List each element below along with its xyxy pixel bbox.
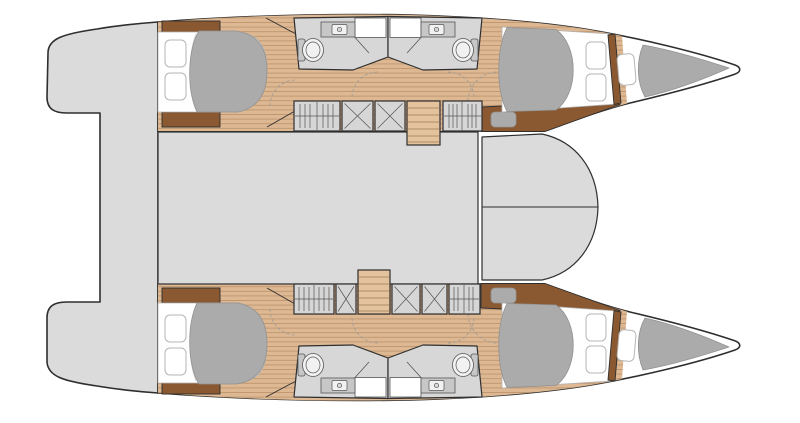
forward-cockpit [482,134,598,280]
catamaran-floor-plan [0,0,800,423]
hanging-wardrobe [449,284,480,314]
floor-plan-canvas [0,0,800,423]
companionway-steps [358,270,390,314]
salon-bridgedeck [158,132,478,284]
hanging-wardrobe [294,101,340,131]
storage-locker [342,101,373,131]
companionway-steps [407,101,440,145]
storage-locker [422,284,447,314]
storage-locker [392,284,420,314]
aft-platform-and-transoms [47,22,158,393]
storage-locker [375,101,405,131]
storage-locker [336,284,356,314]
hanging-wardrobe [294,284,334,314]
hanging-wardrobe [443,101,482,131]
